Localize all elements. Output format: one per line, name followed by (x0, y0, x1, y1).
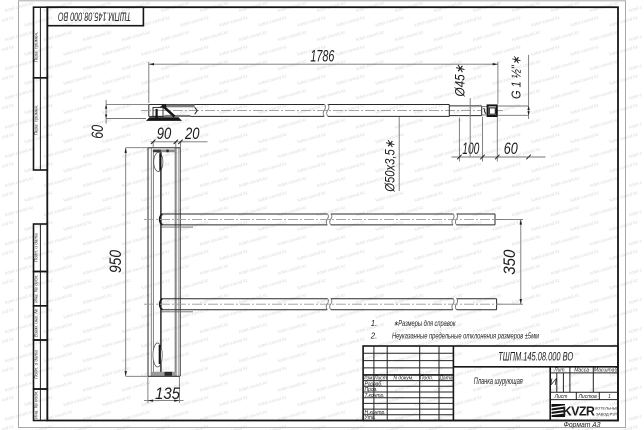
svg-text:Неуказанные предельные отклоне: Неуказанные предельные отклонения размер… (392, 332, 539, 341)
svg-text:Подп. и дата: Подп. и дата (33, 350, 38, 379)
svg-text:Масштаб: Масштаб (594, 368, 618, 374)
svg-text:1.: 1. (371, 319, 378, 328)
svg-text:Формат А3: Формат А3 (564, 422, 601, 429)
svg-text:60: 60 (504, 140, 519, 158)
svg-text:2.: 2. (370, 332, 378, 341)
svg-text:∗Размеры для справок: ∗Размеры для справок (394, 319, 456, 328)
svg-text:Подп. и дата: Подп. и дата (33, 233, 38, 262)
svg-text:Ø45∗: Ø45∗ (453, 64, 468, 97)
svg-text:950: 950 (106, 250, 125, 273)
svg-text:100: 100 (462, 140, 480, 158)
svg-text:ТШПМ.145.08.000 ВО: ТШПМ.145.08.000 ВО (498, 352, 573, 364)
svg-text:Т.контр.: Т.контр. (365, 393, 385, 399)
svg-text:Планка шурующая: Планка шурующая (474, 376, 523, 386)
svg-text:Взам. инв. №: Взам. инв. № (33, 309, 38, 337)
svg-text:60: 60 (88, 124, 107, 138)
svg-text:N докум.: N докум. (393, 376, 413, 382)
svg-text:135: 135 (155, 384, 180, 403)
svg-text:Дата: Дата (438, 376, 452, 382)
svg-text:Масса: Масса (574, 368, 589, 374)
svg-text:И: И (550, 377, 557, 388)
svg-text:Перв. примен.: Перв. примен. (33, 105, 38, 136)
svg-text:ЗАВОД РЭТ: ЗАВОД РЭТ (596, 412, 618, 416)
svg-text:90: 90 (157, 124, 172, 143)
svg-text:Утв.: Утв. (365, 415, 376, 421)
svg-text:ТШПМ.145.08.000 ВО: ТШПМ.145.08.000 ВО (58, 10, 131, 22)
svg-text:20: 20 (184, 124, 200, 143)
svg-text:350: 350 (500, 249, 519, 274)
svg-text:Лит.: Лит. (553, 368, 566, 374)
svg-text:G 1 ½"∗: G 1 ½"∗ (509, 56, 524, 99)
svg-text:1786: 1786 (310, 46, 334, 65)
svg-text:Инв. № дубл.: Инв. № дубл. (33, 274, 38, 302)
svg-text:КОТЕЛЬНЫЙ: КОТЕЛЬНЫЙ (595, 406, 619, 410)
svg-text:Инв. № подл.: Инв. № подл. (33, 390, 38, 419)
svg-text:Перв. примен.: Перв. примен. (33, 32, 38, 63)
svg-text:Подп.: Подп. (420, 376, 433, 382)
svg-text:Ø50х3,5∗: Ø50х3,5∗ (383, 139, 398, 192)
svg-text:KVZR: KVZR (563, 404, 595, 418)
